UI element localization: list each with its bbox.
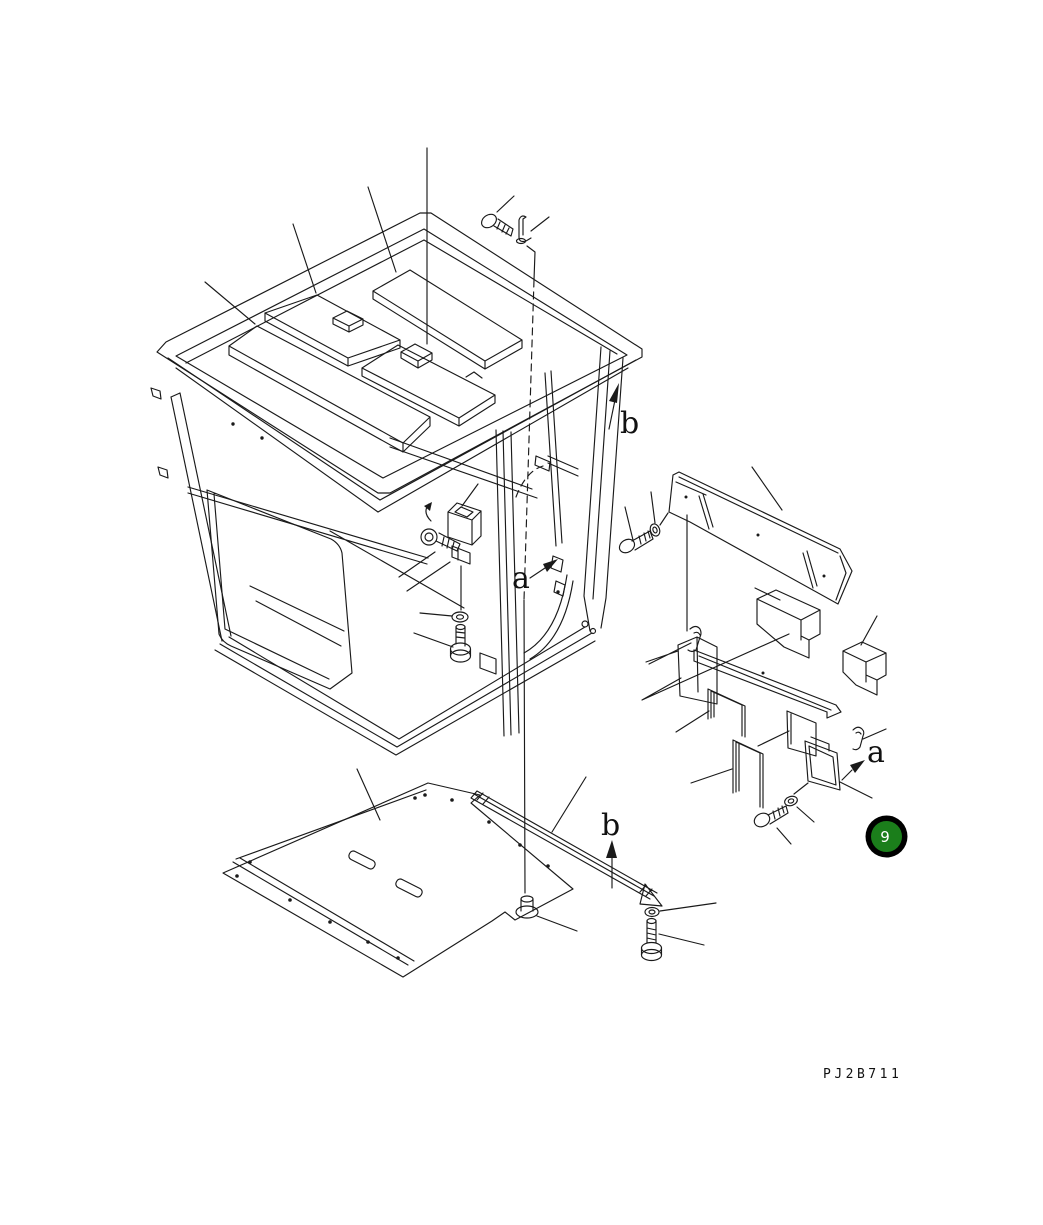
- u-seal-2: [733, 740, 763, 808]
- floor-bolt: [642, 919, 705, 961]
- cab-front-left-pillar: [171, 393, 231, 641]
- plate-washer: [783, 795, 798, 808]
- floor-mat-group: [223, 769, 716, 977]
- mount-box-bracket: [448, 503, 481, 545]
- interior-bolt: [451, 625, 471, 663]
- floor-mat-slot: [347, 850, 376, 871]
- view-label-b-top-text: b: [620, 406, 639, 441]
- eye-bolt: [421, 529, 460, 551]
- cab-roof-outline: [157, 213, 642, 493]
- mount-plate: [805, 737, 840, 790]
- view-label-b-floor: b: [601, 808, 620, 888]
- exploded-parts-diagram-canvas: b a a b 9 PJ2B711: [0, 0, 1043, 1225]
- small-clip: [853, 727, 864, 749]
- roof-bolt: [479, 196, 514, 236]
- mount-lower-bracket: [452, 546, 470, 564]
- panel-bolt: [617, 507, 653, 555]
- panel-washer: [649, 492, 668, 537]
- view-arrow-a-panel-icon: [850, 760, 865, 773]
- view-label-a-panel: a: [842, 735, 885, 780]
- roof-mat-4: [362, 344, 495, 426]
- rear-bracket-panel: [787, 711, 816, 756]
- roof-mat-2: [265, 295, 400, 366]
- sill-trim-strip: [471, 777, 662, 906]
- cab-hinge-brackets: [151, 388, 168, 478]
- cab-handrail: [188, 487, 464, 608]
- rear-exploded-assembly: [617, 467, 886, 844]
- floor-grommet: [516, 896, 577, 931]
- view-label-b-top: b: [609, 383, 639, 441]
- view-label-a-panel-text: a: [867, 735, 885, 770]
- cab-body-wireframe: [151, 213, 642, 755]
- foam-block-2: [843, 642, 886, 695]
- callout-number: 9: [880, 828, 890, 846]
- floor-mat-holes: [235, 793, 550, 960]
- drawing-code: PJ2B711: [823, 1067, 902, 1082]
- interior-washer: [452, 612, 468, 622]
- u-seal-1: [708, 689, 745, 737]
- foam-block-1: [757, 590, 820, 658]
- rear-duct-channel: [694, 650, 841, 718]
- view-label-b-floor-text: b: [601, 808, 620, 843]
- cab-bottom-sill: [215, 627, 595, 755]
- view-arrow-b-top-icon: [609, 383, 619, 403]
- section-line: [527, 246, 535, 280]
- part-callout-badge-9[interactable]: 9: [866, 816, 908, 858]
- rear-j-hook-clip: [688, 627, 701, 652]
- cab-interior-mount-parts: [399, 484, 481, 662]
- view-label-a-cab-text: a: [512, 561, 530, 596]
- roof-mat-leader-lines: [205, 148, 427, 344]
- roof-hook-clip: [517, 216, 550, 244]
- roof-insulation-mats: [205, 148, 522, 452]
- view-label-a-cab: a: [512, 559, 558, 596]
- rear-leader-lines: [642, 588, 886, 844]
- floor-mat-slot: [394, 878, 423, 899]
- rear-cover-panel: [669, 467, 852, 631]
- parts-diagram-page: b a a b 9 PJ2B711: [0, 0, 1043, 1225]
- interior-leader-lines: [399, 484, 478, 647]
- plate-bolt: [752, 806, 788, 829]
